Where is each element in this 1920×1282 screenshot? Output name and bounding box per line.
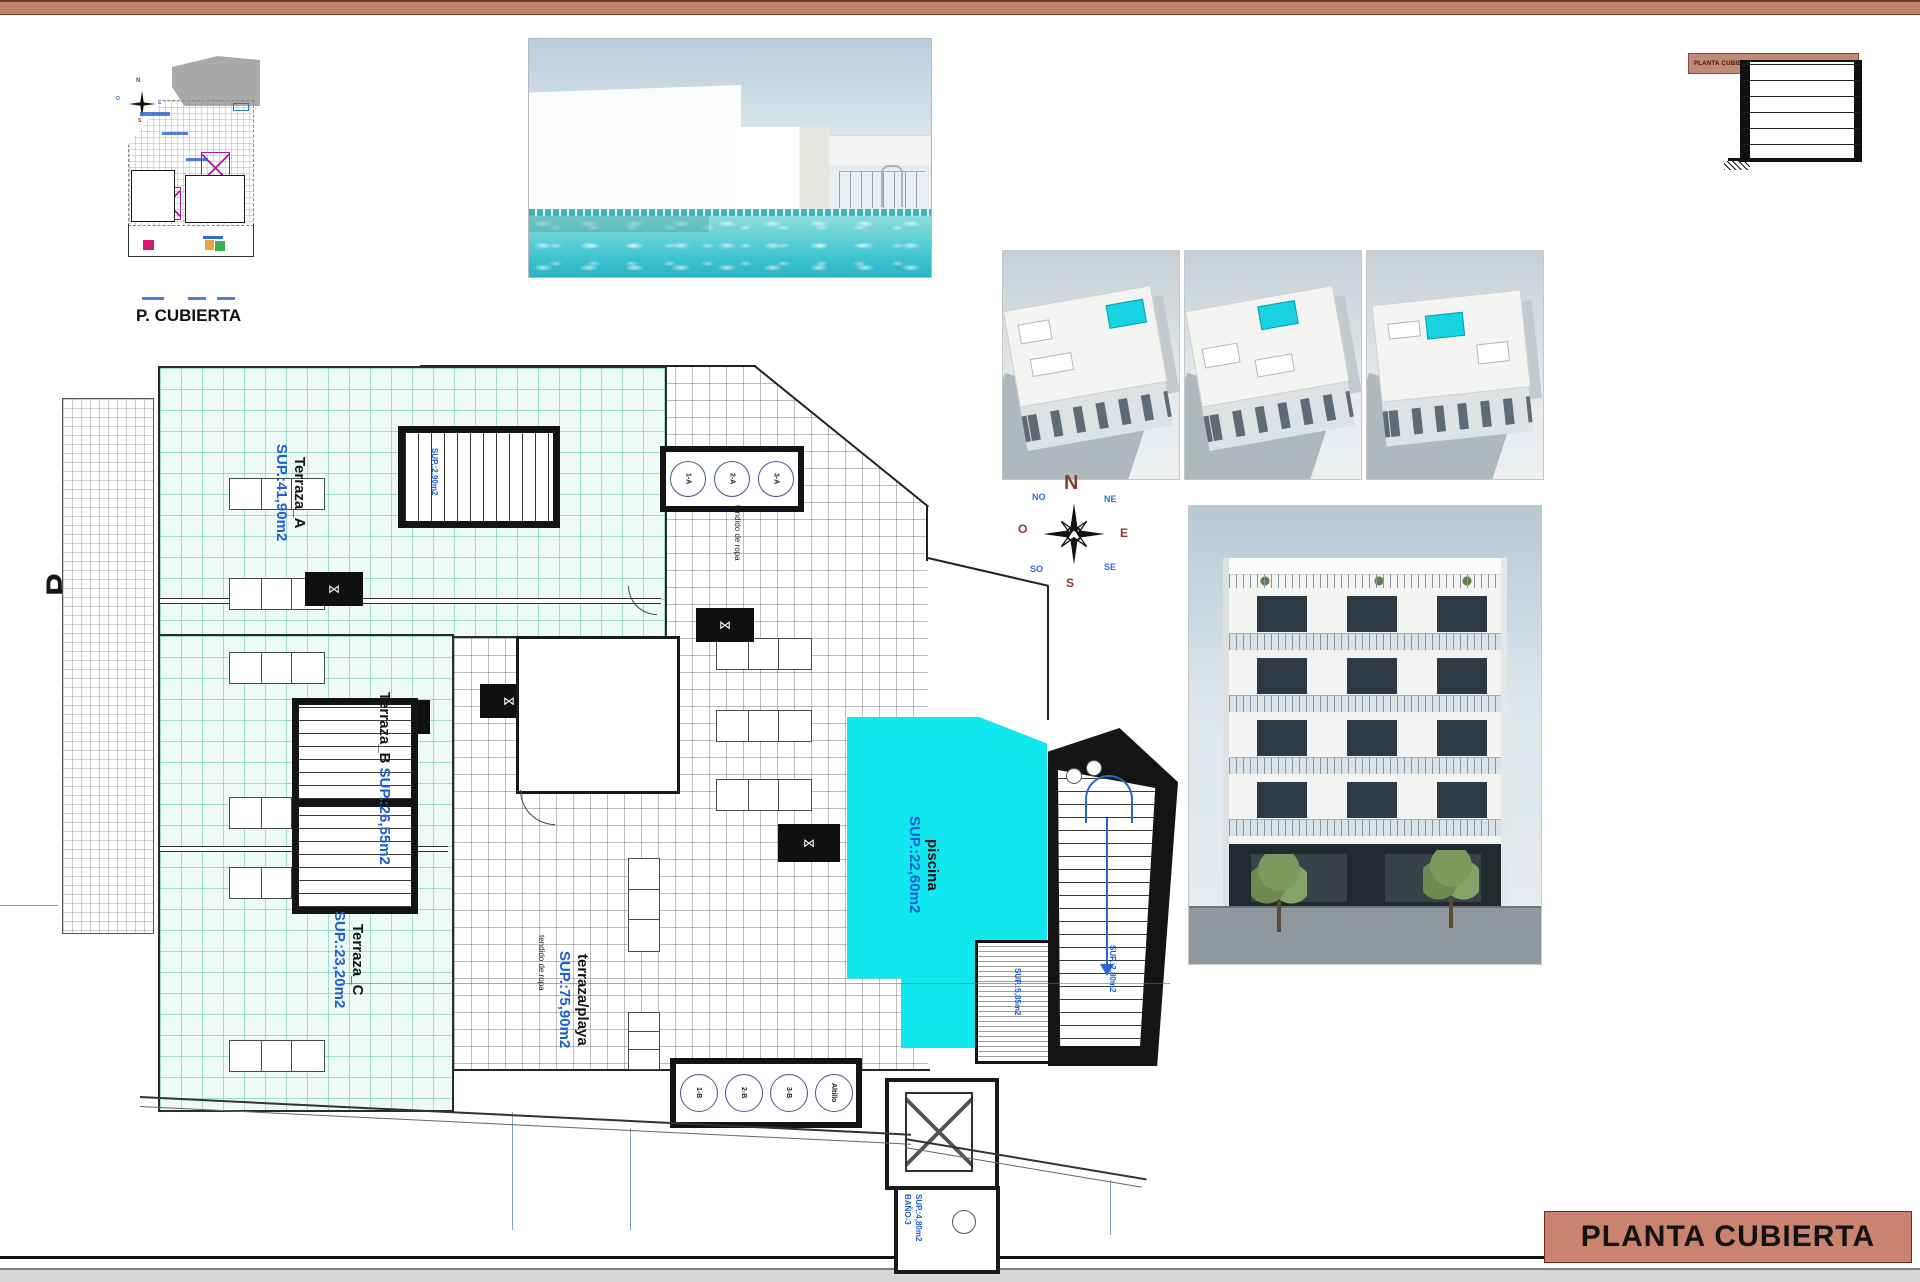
compass-w: O: [1018, 522, 1027, 536]
facade-render: [1188, 505, 1542, 965]
aerial-render-1: [1002, 250, 1180, 480]
ac-unit-icon: [696, 608, 754, 642]
aerial-building: [1371, 290, 1536, 457]
aerial-roof-box: [1387, 320, 1420, 339]
sheet-title: PLANTA CUBIERTA: [1581, 1220, 1875, 1254]
render-left-wall: [529, 85, 741, 211]
lift-machine-room: [516, 636, 680, 794]
laundry-unit-label: 1-B: [695, 1087, 702, 1098]
mini-section-drawing: [1740, 60, 1862, 162]
site-unit-outline-1: [131, 170, 175, 222]
mini-section-hatch: [1724, 161, 1750, 170]
compass-e: E: [1120, 526, 1128, 540]
facade-parapet: [1229, 558, 1501, 575]
site-microtext-4: [142, 297, 164, 300]
wc-fixture: [1086, 760, 1102, 776]
site-compass-w: O: [116, 96, 120, 102]
stair-core-a: [398, 426, 560, 528]
compass-nw: NO: [1032, 492, 1046, 502]
tree: [1251, 854, 1307, 932]
terrace-c-area-label: SUP.:23,20m2: [331, 911, 348, 1008]
tree-canopy: [1423, 850, 1479, 902]
compass-sw: SO: [1030, 564, 1043, 574]
pool-render: [528, 38, 932, 278]
compass-n: N: [1064, 472, 1078, 495]
stair-core-b: [292, 698, 418, 806]
laundry-bay-bottom: 1-B 2-B 3-B Altillo: [670, 1058, 862, 1128]
facade-floor-3: [1229, 654, 1501, 712]
laundry-unit-label: 2-B: [740, 1087, 747, 1098]
stair-right-label: SUP.:2,80m2: [1108, 945, 1117, 1005]
balcony-rail: [1229, 757, 1501, 774]
render-water-shadow: [529, 216, 709, 232]
wc-fixture: [952, 1210, 976, 1234]
laundry-unit: 2-B: [725, 1074, 763, 1112]
balcony-rail: [1229, 819, 1501, 836]
stair-direction-line: [1106, 818, 1108, 966]
wc-fixture: [1066, 768, 1082, 784]
deck-area-label: SUP.:75,90m2: [556, 951, 573, 1048]
stair-direction-curve: [1085, 775, 1133, 823]
laundry-unit-label: 3-A: [773, 473, 780, 484]
facade-roof-terrace: [1229, 574, 1501, 588]
aerial-render-3: [1366, 250, 1544, 480]
laundry-unit-label: 3-B: [785, 1087, 792, 1098]
plan-boundary-right: [926, 505, 928, 561]
site-compass-s: S: [138, 118, 141, 124]
sun-lounger: [628, 858, 660, 952]
aerial-building: [1003, 285, 1177, 461]
drying-area-label-2: tendido de ropa: [537, 935, 546, 1010]
terrace-b-name: Terraza_B: [376, 692, 393, 763]
dimension-line: [512, 1112, 513, 1230]
elevator-car: [905, 1092, 973, 1172]
sun-lounger: [628, 1012, 660, 1070]
pool-label: piscina SUP.:22,60m2: [905, 790, 941, 940]
drying-area-label: tendido de ropa: [733, 505, 742, 575]
laundry-bay-top: 1-A 2-A 3-A: [660, 446, 804, 512]
render-stair-cube: [737, 127, 829, 212]
pool-name: piscina: [924, 839, 941, 891]
title-block: PLANTA CUBIERTA: [1544, 1211, 1912, 1263]
sun-lounger: [716, 779, 812, 811]
bath-area: SUP.:4,80m2: [914, 1194, 923, 1258]
compass: N E S O NO NE SO SE: [1012, 472, 1136, 596]
storage-unit-label: Altillo: [830, 1083, 837, 1102]
render-pool-ladder: [881, 165, 903, 207]
deck-label: terraza/playa SUP.:75,90m2: [555, 920, 591, 1080]
site-roof-mass: [172, 56, 260, 106]
tree-canopy: [1251, 854, 1307, 906]
bottom-rule: [0, 1256, 1544, 1259]
site-plan: N O E S P. CUBIERTA: [100, 48, 290, 338]
laundry-unit-label: 1-A: [685, 473, 692, 484]
aerial-render-2: [1184, 250, 1362, 480]
terrace-b-area-label: SUP.:26,55m2: [376, 767, 393, 864]
tree-trunk: [1449, 898, 1453, 928]
terrace-b-label: Terraza_B SUP.:26,55m2: [375, 688, 393, 868]
terrace-a-label: Terraza_A SUP.:41,90m2: [272, 418, 308, 568]
aerial-roof-box: [1476, 341, 1510, 364]
terrace-c-name: Terraza_C: [349, 924, 366, 995]
solarium-label: SUP.:5,85m2: [1013, 968, 1022, 1038]
site-lower-outline: [128, 224, 254, 257]
top-accent-bar: [0, 0, 1920, 15]
tree: [1423, 850, 1479, 928]
facade-street: [1189, 906, 1541, 965]
laundry-unit: 1-A: [670, 461, 706, 497]
site-microtext-3: [186, 158, 208, 161]
mini-section: PLANTA CUBIERTA: [1680, 40, 1865, 170]
sun-lounger: [229, 1040, 325, 1072]
terrace-a-area-label: SUP.:41,90m2: [273, 444, 290, 541]
aerial-building: [1185, 285, 1359, 461]
construction-line: [340, 983, 1170, 984]
sun-lounger: [229, 652, 325, 684]
deck-name: terraza/playa: [574, 954, 591, 1046]
terrace-c-label: Terraza_C SUP.:23,20m2: [330, 880, 366, 1040]
dimension-line: [630, 1128, 631, 1230]
terrace-a-name: Terraza_A: [291, 457, 308, 528]
neighbour-roof-strip: [62, 398, 154, 934]
site-microtext-5: [188, 297, 206, 300]
site-unit-outline-2: [185, 175, 245, 223]
site-microtext-6: [217, 297, 235, 300]
dimension-tick: [0, 905, 58, 906]
site-plan-caption: P. CUBIERTA: [136, 306, 256, 326]
dimension-line: [1110, 1180, 1111, 1235]
pool-area: SUP.:22,60m2: [906, 816, 923, 913]
sheet: PLANTA CUBIERTA P. CUBIERTA N O E S P. C…: [0, 0, 1920, 1280]
sun-lounger: [716, 638, 812, 670]
facade-floor-2: [1229, 716, 1501, 774]
storage-unit: Altillo: [815, 1074, 853, 1112]
stair-a-label: SUP.:2,90m2: [430, 448, 439, 508]
compass-icon: [1042, 502, 1106, 566]
render-pool-tile-edge: [529, 209, 931, 216]
laundry-unit: 1-B: [680, 1074, 718, 1112]
sun-lounger: [716, 710, 812, 742]
laundry-unit-label: 2-A: [729, 473, 736, 484]
laundry-unit: 3-A: [758, 461, 794, 497]
balcony-rail: [1229, 695, 1501, 712]
balcony-rail: [1229, 633, 1501, 650]
ac-unit-icon: [305, 572, 363, 606]
compass-s: S: [1066, 576, 1074, 590]
facade-floor-1: [1229, 778, 1501, 836]
pool-boundary-right: [1047, 586, 1049, 720]
site-compass-n: N: [136, 78, 140, 84]
site-microtext-1: [140, 112, 170, 116]
compass-se: SE: [1104, 562, 1116, 572]
bath-name: BAÑO-3: [903, 1194, 912, 1258]
site-microtext-2: [162, 132, 188, 135]
tree-trunk: [1277, 902, 1281, 932]
laundry-unit: 2-A: [714, 461, 750, 497]
facade-floor-4: [1229, 592, 1501, 650]
laundry-unit: 3-B: [770, 1074, 808, 1112]
aerial-pool: [1425, 312, 1465, 340]
compass-ne: NE: [1104, 494, 1117, 504]
ac-unit-icon: [778, 824, 840, 862]
